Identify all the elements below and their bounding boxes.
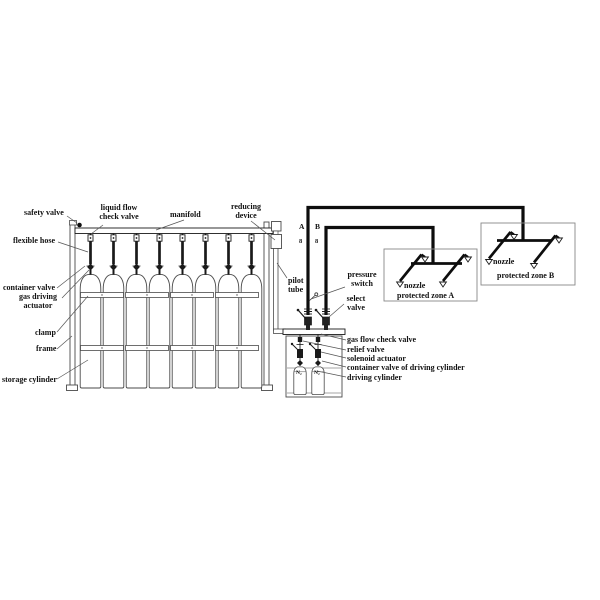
label-reducing-device: reducing device [226, 203, 266, 220]
label-clamp: clamp [35, 329, 56, 338]
label-pressure-switch: pressure switch [341, 271, 383, 288]
label-manifold: manifold [170, 211, 201, 220]
label-driving-cylinder: driving cylinder [347, 374, 402, 383]
label-flexible-hose: flexible hose [13, 237, 55, 246]
storage-cylinder-group [80, 275, 262, 388]
label-line-a-mark: 8 [299, 239, 302, 246]
label-select-valve: select valve [341, 295, 371, 312]
reducing-device-symbol [271, 222, 282, 249]
nozzle-icon [531, 264, 538, 269]
select-valve-manifold-bar [283, 329, 345, 335]
label-storage-cylinder: storage cylinder [2, 376, 57, 385]
label-gas-flow-check-valve: gas flow check valve [347, 336, 416, 345]
nozzle-icon [556, 238, 563, 243]
nozzle-icon [440, 282, 447, 287]
label-protected-zone-b: protected zone B [497, 272, 554, 281]
label-frame: frame [36, 345, 56, 354]
label-line-a: A [299, 223, 304, 231]
nozzle-icon [422, 257, 429, 262]
safety-valve-symbol [77, 223, 82, 228]
label-n2-right: N₂ [314, 371, 320, 377]
driving-cylinder-assembly [283, 329, 345, 397]
select-valve-b-symbol [315, 309, 330, 330]
label-safety-valve: safety valve [24, 209, 64, 218]
nozzle-icon [397, 282, 404, 287]
label-line-b-mark: 8 [315, 239, 318, 246]
nozzle-icon [465, 257, 472, 262]
label-line-b: B [315, 223, 320, 231]
driving-train-right [309, 334, 322, 366]
flexible-hose-group [87, 234, 256, 275]
label-pilot-tube: pilot tube [288, 277, 304, 294]
label-nozzle-a: nozzle [404, 282, 425, 291]
driving-train-left [291, 334, 304, 366]
select-valve-a-symbol [297, 309, 312, 330]
label-container-valve-of-driving-cylinder: container valve of driving cylinder [347, 364, 465, 373]
label-n2-left: N₂ [296, 371, 302, 377]
diagram-canvas [0, 0, 600, 600]
label-protected-zone-a: protected zone A [397, 292, 454, 301]
nozzle-icon [511, 235, 518, 240]
diagram-page: safety valve liquid flow check valve man… [0, 0, 600, 600]
label-nozzle-b: nozzle [493, 258, 514, 267]
label-liquid-flow-check-valve: liquid flow check valve [94, 204, 144, 221]
nozzle-icon [486, 260, 493, 265]
label-gas-driving-actuator: gas driving actuator [14, 293, 62, 310]
manifold-pipe [75, 228, 273, 234]
pilot-tube-pipe [274, 249, 286, 334]
